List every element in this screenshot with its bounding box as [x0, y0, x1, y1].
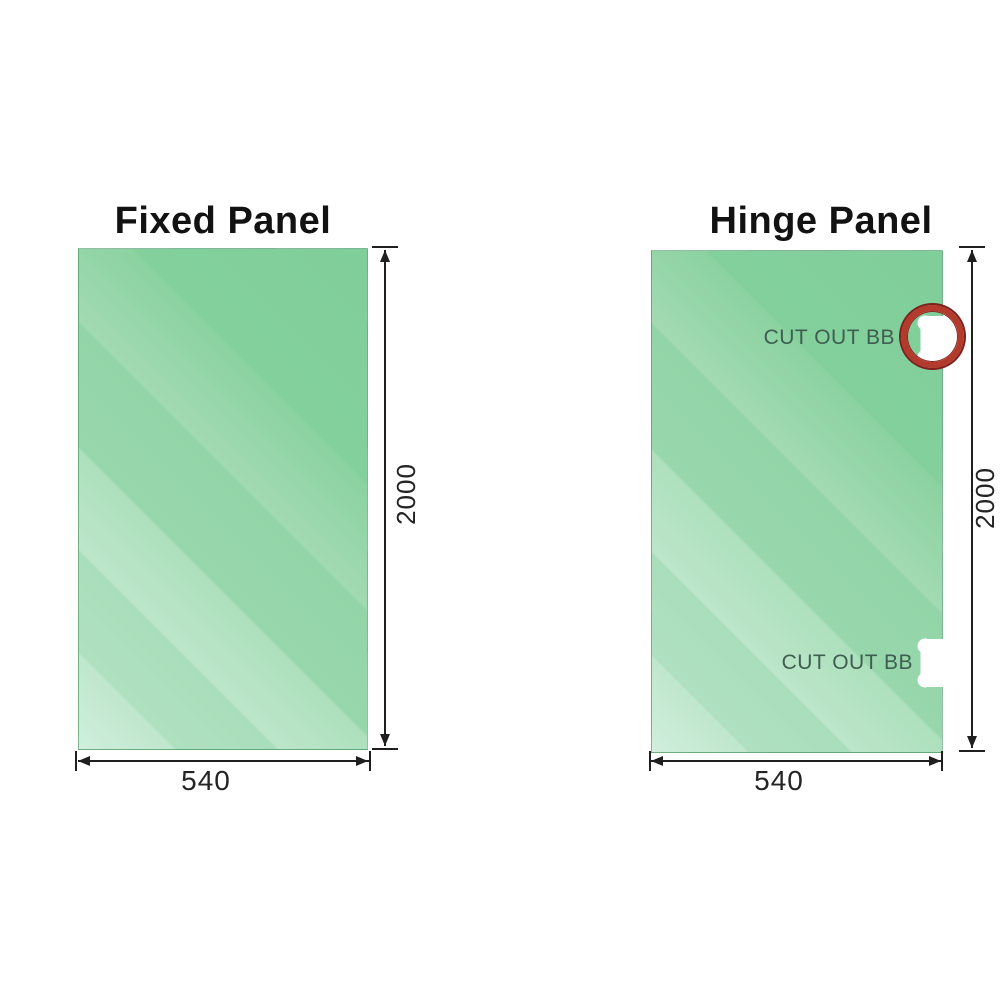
fixed-width-dimension-line: [78, 760, 370, 762]
fixed-panel-title: Fixed Panel: [78, 199, 368, 243]
hinge-width-dimension-label: 540: [633, 767, 925, 795]
hinge-height-top-tick: [959, 246, 985, 248]
fixed-height-top-tick: [372, 246, 398, 248]
hinge-panel-title: Hinge Panel: [671, 199, 971, 243]
hinge-cutout-bottom-shape: [916, 637, 944, 689]
hinge-height-bottom-tick: [959, 750, 985, 752]
fixed-width-dimension-label: 540: [60, 767, 352, 795]
fixed-height-bottom-tick: [372, 748, 398, 750]
fixed-height-arrowhead-up-icon: [380, 250, 390, 262]
hinge-width-arrowhead-right-icon: [929, 756, 941, 766]
fixed-width-arrowhead-left-icon: [78, 756, 90, 766]
fixed-height-dimension-line: [384, 250, 386, 746]
hinge-width-dimension-line: [651, 760, 943, 762]
fixed-height-dimension-label: 2000: [393, 459, 419, 529]
hinge-width-arrowhead-left-icon: [651, 756, 663, 766]
fixed-height-arrowhead-down-icon: [380, 734, 390, 746]
fixed-width-arrowhead-right-icon: [356, 756, 368, 766]
diagram-canvas: Fixed Panel 2000 540 Hinge Panel CUT OUT…: [0, 0, 1000, 1000]
cutout-highlight-circle: [901, 305, 964, 368]
cutout-top-label: CUT OUT BB: [750, 326, 895, 350]
hinge-height-arrowhead-up-icon: [967, 250, 977, 262]
hinge-height-arrowhead-down-icon: [967, 736, 977, 748]
hinge-height-dimension-label: 2000: [972, 463, 998, 533]
cutout-bottom-label: CUT OUT BB: [768, 651, 913, 675]
fixed-panel-glass: [78, 248, 368, 750]
